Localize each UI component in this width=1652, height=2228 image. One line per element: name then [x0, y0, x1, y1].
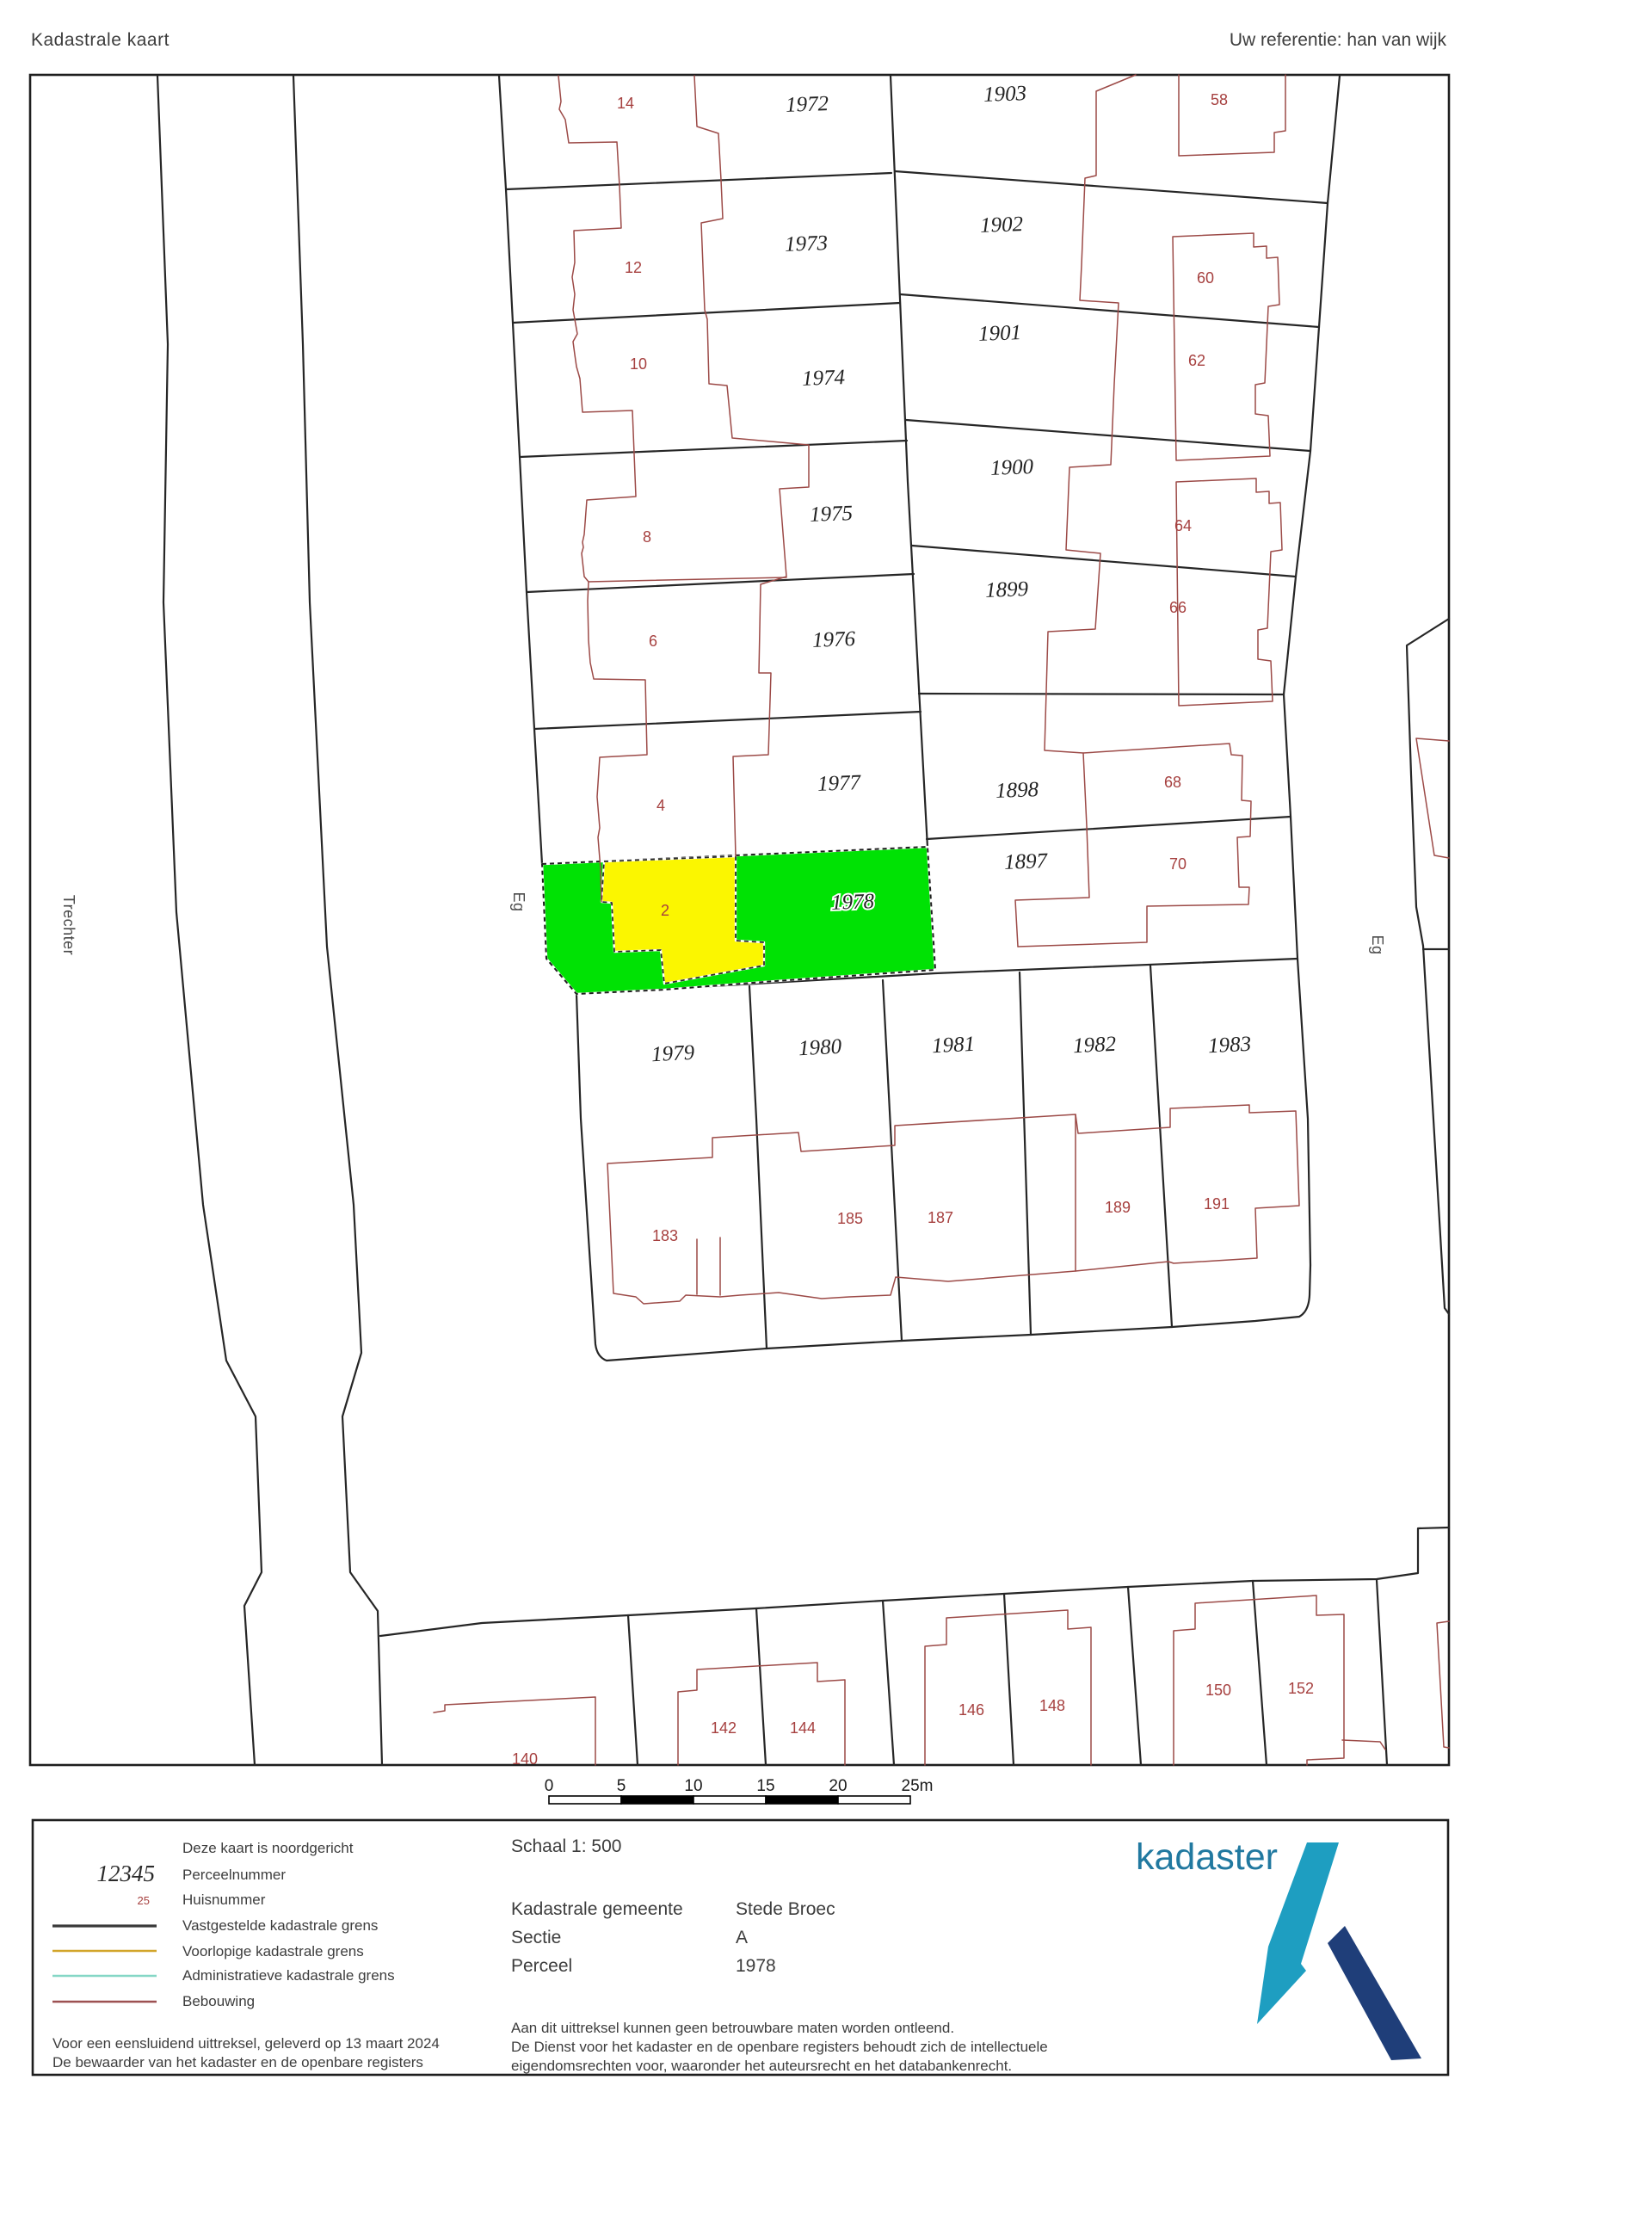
svg-text:Schaal 1: 500: Schaal 1: 500: [511, 1836, 621, 1856]
svg-text:1902: 1902: [980, 213, 1024, 238]
svg-text:142: 142: [711, 1719, 737, 1737]
svg-text:Voor een eensluidend uittrekse: Voor een eensluidend uittreksel, gelever…: [52, 2035, 440, 2052]
svg-text:12: 12: [625, 259, 642, 276]
svg-text:60: 60: [1197, 269, 1214, 287]
svg-text:189: 189: [1105, 1199, 1131, 1216]
svg-text:25: 25: [138, 1894, 150, 1907]
svg-text:Uw referentie: han van wijk: Uw referentie: han van wijk: [1230, 30, 1447, 50]
svg-text:1979: 1979: [650, 1041, 695, 1067]
svg-text:148: 148: [1039, 1697, 1065, 1714]
svg-text:1978: 1978: [831, 890, 875, 915]
svg-text:Stede Broec: Stede Broec: [736, 1899, 835, 1919]
svg-text:15: 15: [756, 1777, 774, 1795]
svg-text:Perceelnummer: Perceelnummer: [182, 1867, 286, 1883]
svg-text:Huisnummer: Huisnummer: [182, 1892, 266, 1908]
svg-text:1977: 1977: [817, 771, 862, 796]
svg-text:1900: 1900: [990, 455, 1034, 480]
svg-text:8: 8: [643, 528, 651, 546]
svg-text:Voorlopige kadastrale grens: Voorlopige kadastrale grens: [182, 1943, 364, 1960]
svg-text:1898: 1898: [996, 778, 1039, 803]
svg-text:2: 2: [661, 902, 669, 919]
svg-text:1903: 1903: [983, 82, 1027, 107]
svg-text:191: 191: [1204, 1195, 1230, 1213]
svg-text:1972: 1972: [786, 92, 829, 117]
svg-text:1973: 1973: [785, 231, 829, 256]
svg-text:Eg: Eg: [510, 892, 527, 911]
svg-text:185: 185: [837, 1210, 863, 1227]
svg-text:1982: 1982: [1072, 1033, 1116, 1058]
svg-text:Bebouwing: Bebouwing: [182, 1993, 255, 2009]
svg-text:Kadastrale gemeente: Kadastrale gemeente: [511, 1899, 683, 1919]
svg-text:1974: 1974: [802, 366, 846, 391]
svg-text:De Dienst voor het kadaster en: De Dienst voor het kadaster en de openba…: [511, 2039, 1048, 2055]
svg-text:150: 150: [1205, 1682, 1231, 1699]
svg-text:1901: 1901: [978, 321, 1022, 346]
svg-text:1897: 1897: [1004, 849, 1049, 874]
svg-text:5: 5: [617, 1777, 626, 1795]
svg-text:Sectie: Sectie: [511, 1928, 561, 1947]
svg-text:Trechter: Trechter: [60, 895, 77, 955]
svg-text:1978: 1978: [736, 1956, 776, 1976]
svg-text:62: 62: [1188, 352, 1205, 369]
svg-text:10: 10: [630, 355, 647, 373]
svg-text:144: 144: [790, 1719, 816, 1737]
svg-text:25m: 25m: [902, 1777, 934, 1795]
svg-text:Aan dit uittreksel kunnen geen: Aan dit uittreksel kunnen geen betrouwba…: [511, 2020, 954, 2036]
svg-text:Administratieve kadastrale gre: Administratieve kadastrale grens: [182, 1967, 395, 1984]
svg-text:68: 68: [1164, 774, 1181, 791]
svg-text:1899: 1899: [985, 577, 1029, 602]
svg-text:1981: 1981: [931, 1033, 975, 1058]
svg-text:187: 187: [928, 1209, 953, 1226]
svg-text:146: 146: [959, 1701, 984, 1719]
svg-text:64: 64: [1174, 517, 1192, 534]
svg-text:Deze kaart is noordgericht: Deze kaart is noordgericht: [182, 1840, 354, 1856]
svg-text:A: A: [736, 1928, 748, 1947]
svg-text:eigendomsrechten voor, waarond: eigendomsrechten voor, waaronder het aut…: [511, 2058, 1012, 2074]
svg-text:152: 152: [1288, 1680, 1314, 1697]
svg-text:1983: 1983: [1207, 1033, 1251, 1058]
svg-text:1980: 1980: [798, 1035, 842, 1061]
svg-text:De bewaarder van het kadaster: De bewaarder van het kadaster en de open…: [52, 2054, 423, 2071]
svg-text:Perceel: Perceel: [511, 1956, 572, 1976]
svg-text:70: 70: [1169, 855, 1187, 873]
svg-text:kadaster: kadaster: [1136, 1836, 1278, 1878]
svg-text:0: 0: [545, 1777, 554, 1795]
svg-text:140: 140: [512, 1750, 538, 1768]
svg-text:20: 20: [829, 1777, 847, 1795]
svg-text:183: 183: [652, 1227, 678, 1244]
svg-text:4: 4: [656, 797, 665, 814]
svg-text:Eg: Eg: [1369, 935, 1386, 954]
svg-text:1976: 1976: [812, 627, 856, 652]
svg-text:Kadastrale kaart: Kadastrale kaart: [31, 30, 170, 50]
svg-text:10: 10: [684, 1777, 702, 1795]
svg-text:1975: 1975: [810, 502, 854, 527]
svg-text:Vastgestelde kadastrale grens: Vastgestelde kadastrale grens: [182, 1917, 378, 1934]
svg-text:14: 14: [617, 95, 634, 112]
svg-text:12345: 12345: [97, 1861, 156, 1886]
svg-text:58: 58: [1211, 91, 1228, 108]
svg-text:66: 66: [1169, 599, 1187, 616]
svg-text:6: 6: [649, 633, 657, 650]
